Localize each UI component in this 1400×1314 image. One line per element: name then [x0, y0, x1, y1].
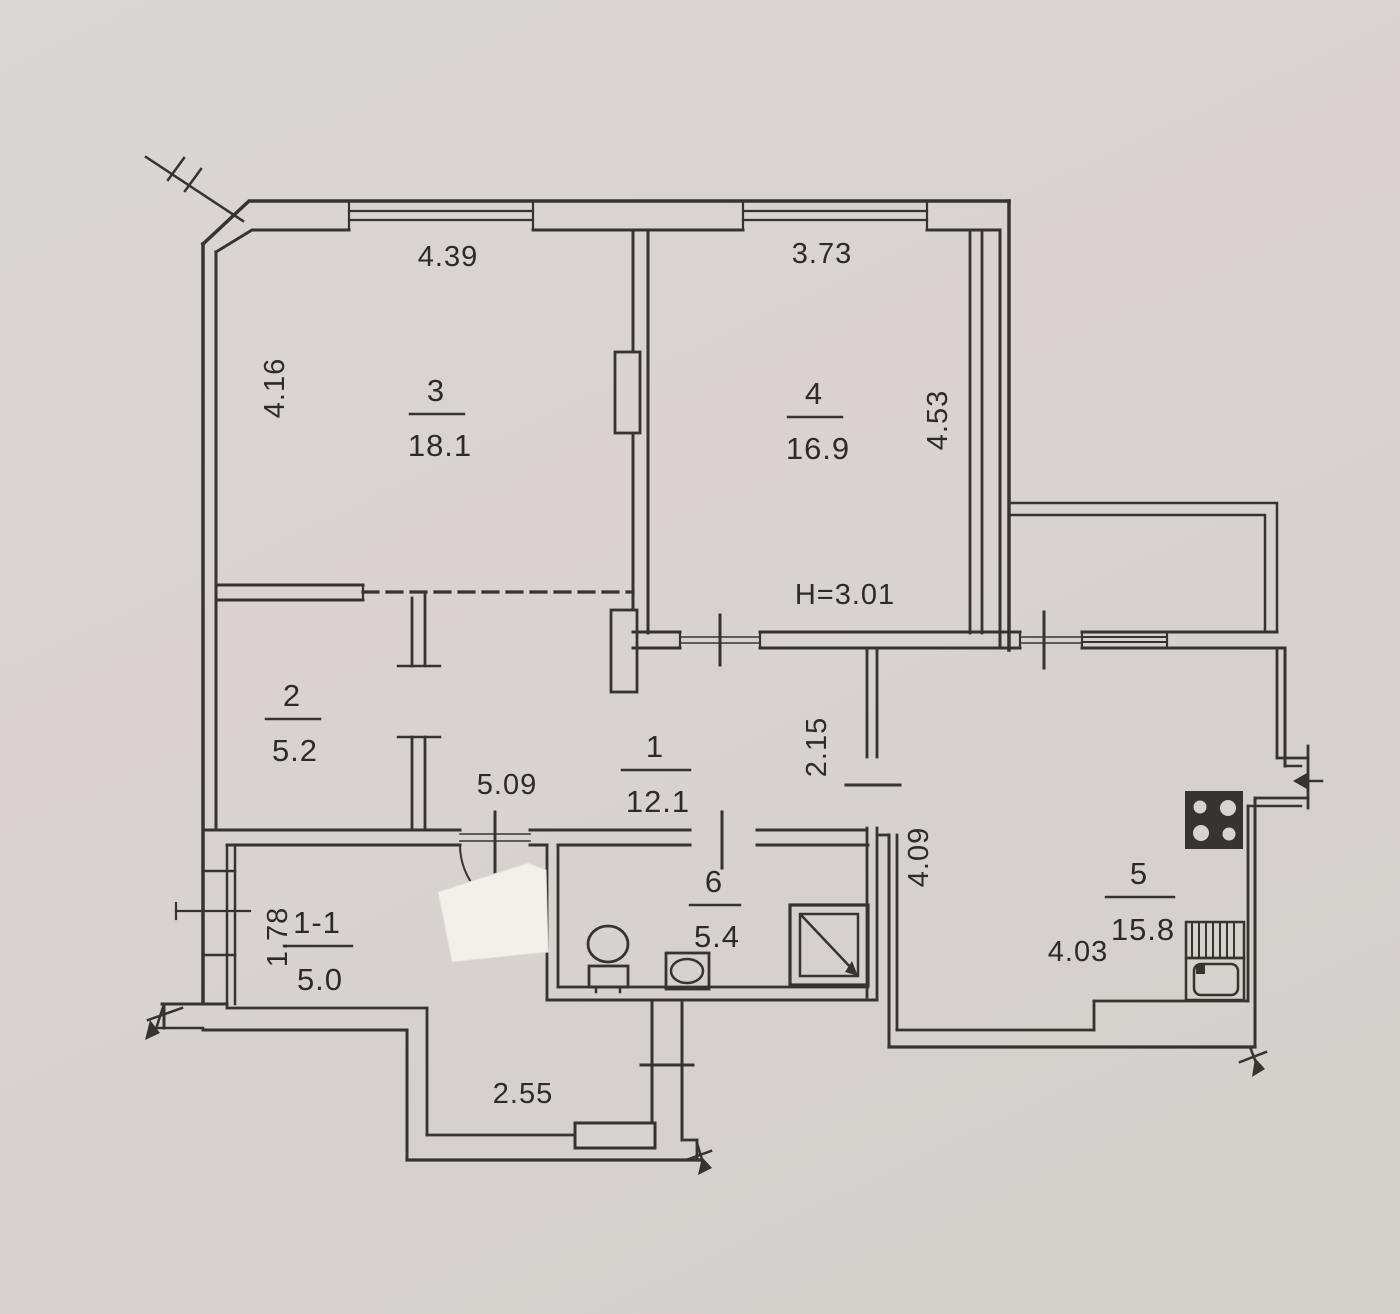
correction-patch [438, 863, 548, 962]
floor-plan-svg: 1 12.1 1-1 5.0 2 5.2 3 18.1 4 16.9 5 15.… [0, 0, 1400, 1314]
room-6-area: 5.4 [694, 919, 740, 954]
shower-icon [790, 905, 868, 985]
room-2-number: 2 [283, 678, 301, 713]
dim-room3-top: 4.39 [418, 241, 478, 273]
wall-pilaster [611, 610, 637, 692]
room-1-area: 12.1 [626, 784, 690, 819]
room-6-number: 6 [705, 864, 723, 899]
axis-marker-top-left [146, 157, 243, 221]
room-1-1-area: 5.0 [297, 962, 343, 997]
dim-corridor: 2.15 [801, 717, 833, 777]
interior-walls [203, 230, 1308, 1160]
room-4-area: 16.9 [786, 431, 850, 466]
entrance-door-icon [575, 1123, 655, 1148]
dim-kitchen-bottom: 4.03 [1048, 936, 1108, 968]
ground-marker-kitchen [1240, 1047, 1266, 1077]
room-3-area: 18.1 [408, 428, 472, 463]
window-room4-icon [743, 201, 927, 230]
dim-vestibule: 2.55 [493, 1078, 553, 1110]
room-5-area: 15.8 [1111, 912, 1175, 947]
balcony-railing [1009, 503, 1277, 632]
wall-pilaster [615, 352, 640, 433]
room-5-number: 5 [1130, 856, 1148, 891]
room-1-number: 1 [646, 729, 664, 764]
kitchen-sink-icon [1186, 922, 1244, 1000]
washbasin-icon [666, 953, 709, 989]
window-kitchen-icon [1082, 637, 1167, 642]
window-hall-left-icon [176, 871, 250, 955]
dim-room4-right: 4.53 [922, 390, 954, 450]
scanned-floor-plan: 1 12.1 1-1 5.0 2 5.2 3 18.1 4 16.9 5 15.… [0, 0, 1400, 1314]
exterior-walls [158, 201, 1009, 1028]
dim-hall11-left: 1.78 [262, 907, 294, 967]
dim-hallway: 5.09 [477, 769, 537, 801]
stove-icon [1185, 791, 1243, 849]
room-2-area: 5.2 [272, 733, 318, 768]
window-room3-icon [349, 201, 533, 230]
room-4-number: 4 [805, 376, 823, 411]
room-3-number: 3 [427, 373, 445, 408]
toilet-icon [588, 926, 628, 992]
dim-kitchen-left: 4.09 [903, 827, 935, 887]
room-labels: 1 12.1 1-1 5.0 2 5.2 3 18.1 4 16.9 5 15.… [266, 373, 1175, 997]
ceiling-height-label: H=3.01 [795, 579, 895, 611]
dim-room4-top: 3.73 [792, 238, 852, 270]
dim-room3-left: 4.16 [259, 358, 291, 418]
room-1-1-number: 1-1 [293, 905, 341, 940]
